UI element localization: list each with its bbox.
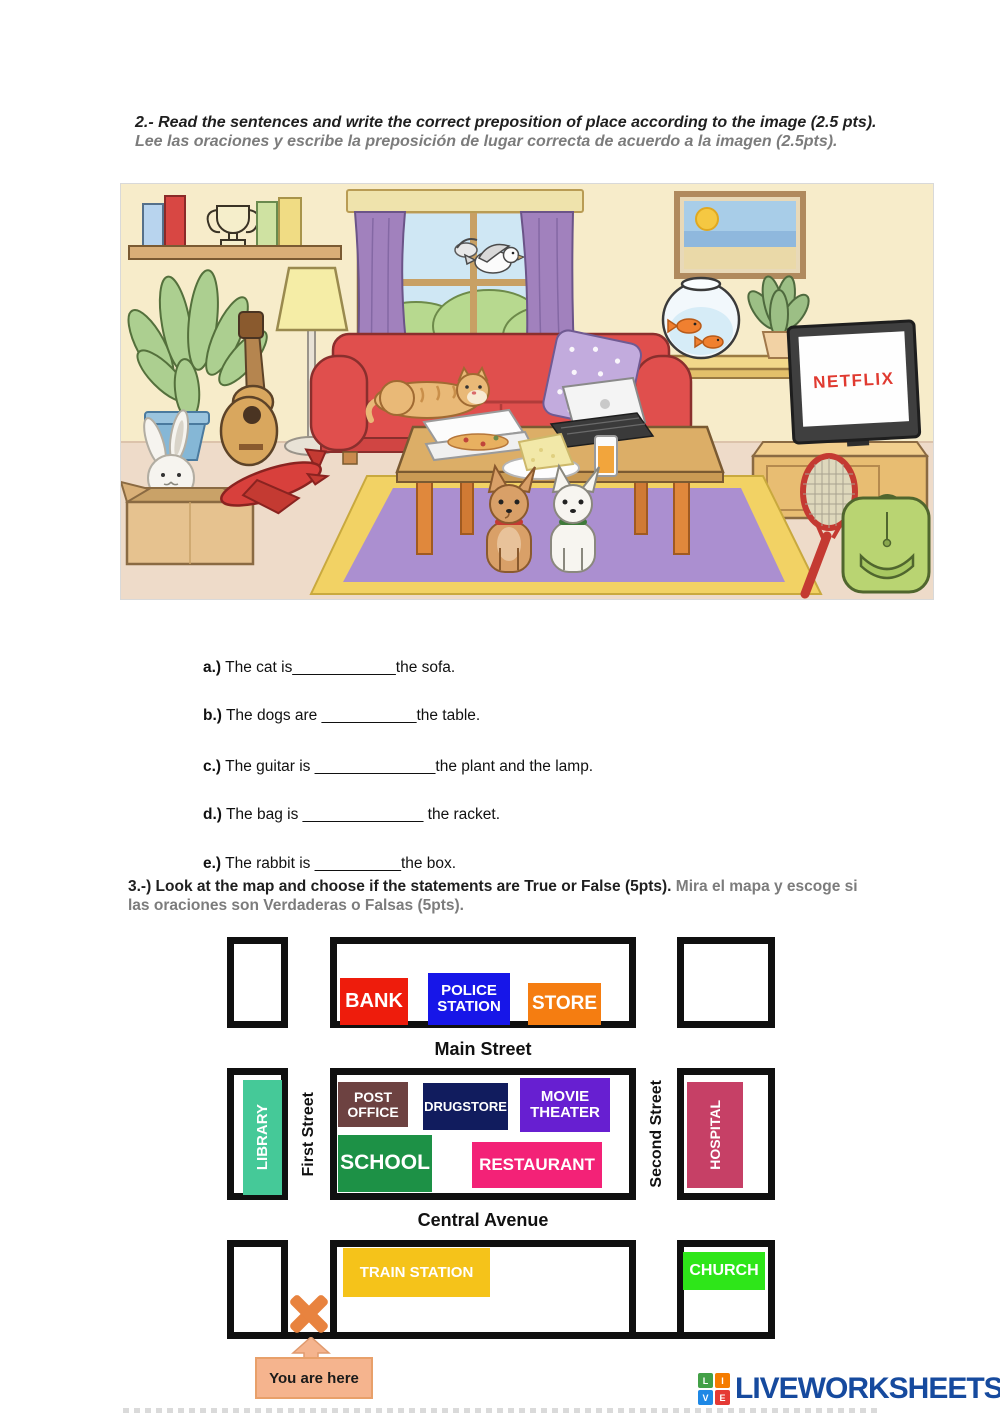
building-restaurant: RESTAURANT bbox=[472, 1142, 602, 1188]
street-label-first: First Street bbox=[287, 1068, 330, 1200]
logo-cube-v: V bbox=[698, 1390, 713, 1405]
pelmet bbox=[347, 190, 583, 212]
street-label-first-text: First Street bbox=[300, 1092, 318, 1176]
sentence-b-blank[interactable]: ___________ bbox=[322, 707, 417, 724]
liveworksheets-logo[interactable]: L I V E LIVEWORKSHEETS bbox=[698, 1372, 1000, 1406]
sentence-e-letter: e.) bbox=[203, 855, 221, 872]
question2-heading: 2.- Read the sentences and write the cor… bbox=[135, 113, 890, 151]
liveworksheets-logo-text: LIVEWORKSHEETS bbox=[735, 1372, 1000, 1406]
tv: NETFLIX bbox=[788, 321, 920, 449]
question3-heading-en: 3.-) Look at the map and choose if the s… bbox=[128, 878, 676, 895]
logo-cube-l: L bbox=[698, 1373, 713, 1388]
living-room-illustration: NETFLIX bbox=[121, 184, 933, 599]
question2-heading-es: Lee las oraciones y escribe la preposici… bbox=[135, 133, 838, 150]
sentence-a-blank[interactable]: ____________ bbox=[292, 659, 395, 676]
question2-heading-en: 2.- Read the sentences and write the cor… bbox=[135, 114, 877, 131]
building-store: STORE bbox=[528, 983, 601, 1025]
sentence-c-before: The guitar is bbox=[225, 758, 315, 775]
logo-cube-e: E bbox=[715, 1390, 730, 1405]
clipped-next-line bbox=[123, 1408, 880, 1413]
building-hospital-label: HOSPITAL bbox=[708, 1100, 723, 1170]
building-bank: BANK bbox=[340, 978, 408, 1025]
map-block-bottom-left bbox=[227, 1240, 288, 1339]
sentence-c: c.) The guitar is ______________the plan… bbox=[203, 758, 803, 776]
sentence-a-before: The cat is bbox=[225, 659, 292, 676]
picture-frame bbox=[677, 194, 803, 276]
sentence-d-blank[interactable]: ______________ bbox=[303, 806, 424, 823]
street-label-central: Central Avenue bbox=[330, 1201, 636, 1240]
building-library-label: LIBRARY bbox=[255, 1104, 271, 1170]
worksheet-page: 2.- Read the sentences and write the cor… bbox=[0, 0, 1000, 1413]
sentence-a-letter: a.) bbox=[203, 659, 221, 676]
sentence-e: e.) The rabbit is __________the box. bbox=[203, 855, 803, 873]
map-block-top-right bbox=[677, 937, 775, 1028]
you-are-here-x-icon bbox=[290, 1294, 328, 1334]
sentence-a-after: the sofa. bbox=[396, 659, 455, 676]
sentence-c-blank[interactable]: ______________ bbox=[315, 758, 436, 775]
building-library: LIBRARY bbox=[243, 1080, 282, 1195]
liveworksheets-logo-icon: L I V E bbox=[698, 1373, 730, 1405]
sentence-e-after: the box. bbox=[401, 855, 456, 872]
sentence-e-before: The rabbit is bbox=[225, 855, 315, 872]
building-drugstore: DRUGSTORE bbox=[423, 1083, 508, 1130]
living-room-image: NETFLIX bbox=[120, 183, 934, 600]
street-label-second: Second Street bbox=[636, 1068, 677, 1200]
building-hospital: HOSPITAL bbox=[687, 1082, 743, 1188]
sentence-b: b.) The dogs are ___________the table. bbox=[203, 707, 803, 725]
sentence-d-letter: d.) bbox=[203, 806, 222, 823]
building-movie-theater: MOVIE THEATER bbox=[520, 1078, 610, 1132]
building-post-office: POST OFFICE bbox=[338, 1082, 408, 1127]
you-are-here-label: You are here bbox=[255, 1357, 373, 1399]
street-label-main: Main Street bbox=[330, 1031, 636, 1068]
sentence-c-letter: c.) bbox=[203, 758, 221, 775]
sentence-e-blank[interactable]: __________ bbox=[315, 855, 401, 872]
sentence-d-before: The bag is bbox=[226, 806, 303, 823]
map-block-top-left bbox=[227, 937, 288, 1028]
sentence-d: d.) The bag is ______________ the racket… bbox=[203, 806, 803, 824]
building-train-station: TRAIN STATION bbox=[343, 1248, 490, 1297]
city-map: BANK POLICE STATION STORE LIBRARY POST O… bbox=[227, 937, 775, 1339]
sentence-b-letter: b.) bbox=[203, 707, 222, 724]
building-school: SCHOOL bbox=[338, 1135, 432, 1192]
question3-heading: 3.-) Look at the map and choose if the s… bbox=[128, 877, 883, 915]
building-church: CHURCH bbox=[683, 1252, 765, 1290]
sun bbox=[696, 208, 718, 230]
logo-cube-i: I bbox=[715, 1373, 730, 1388]
sentence-b-before: The dogs are bbox=[226, 707, 322, 724]
you-are-here-arrow-icon bbox=[291, 1337, 331, 1359]
backpack bbox=[843, 496, 929, 592]
sentence-c-after: the plant and the lamp. bbox=[435, 758, 593, 775]
building-police-station: POLICE STATION bbox=[428, 973, 510, 1025]
street-label-second-text: Second Street bbox=[648, 1080, 666, 1188]
sentence-d-after: the racket. bbox=[423, 806, 500, 823]
sentence-b-after: the table. bbox=[416, 707, 480, 724]
sentence-a: a.) The cat is____________the sofa. bbox=[203, 659, 803, 677]
